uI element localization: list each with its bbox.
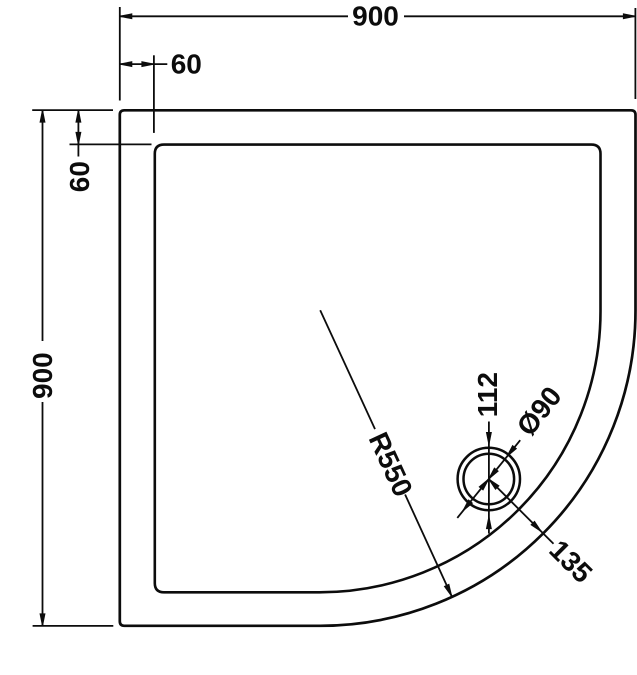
svg-text:R550: R550 <box>363 428 419 502</box>
svg-text:60: 60 <box>64 161 95 192</box>
svg-text:Ø90: Ø90 <box>511 381 568 442</box>
svg-text:900: 900 <box>27 352 58 399</box>
svg-text:112: 112 <box>472 372 503 417</box>
svg-text:60: 60 <box>171 48 202 79</box>
svg-text:900: 900 <box>352 1 399 32</box>
